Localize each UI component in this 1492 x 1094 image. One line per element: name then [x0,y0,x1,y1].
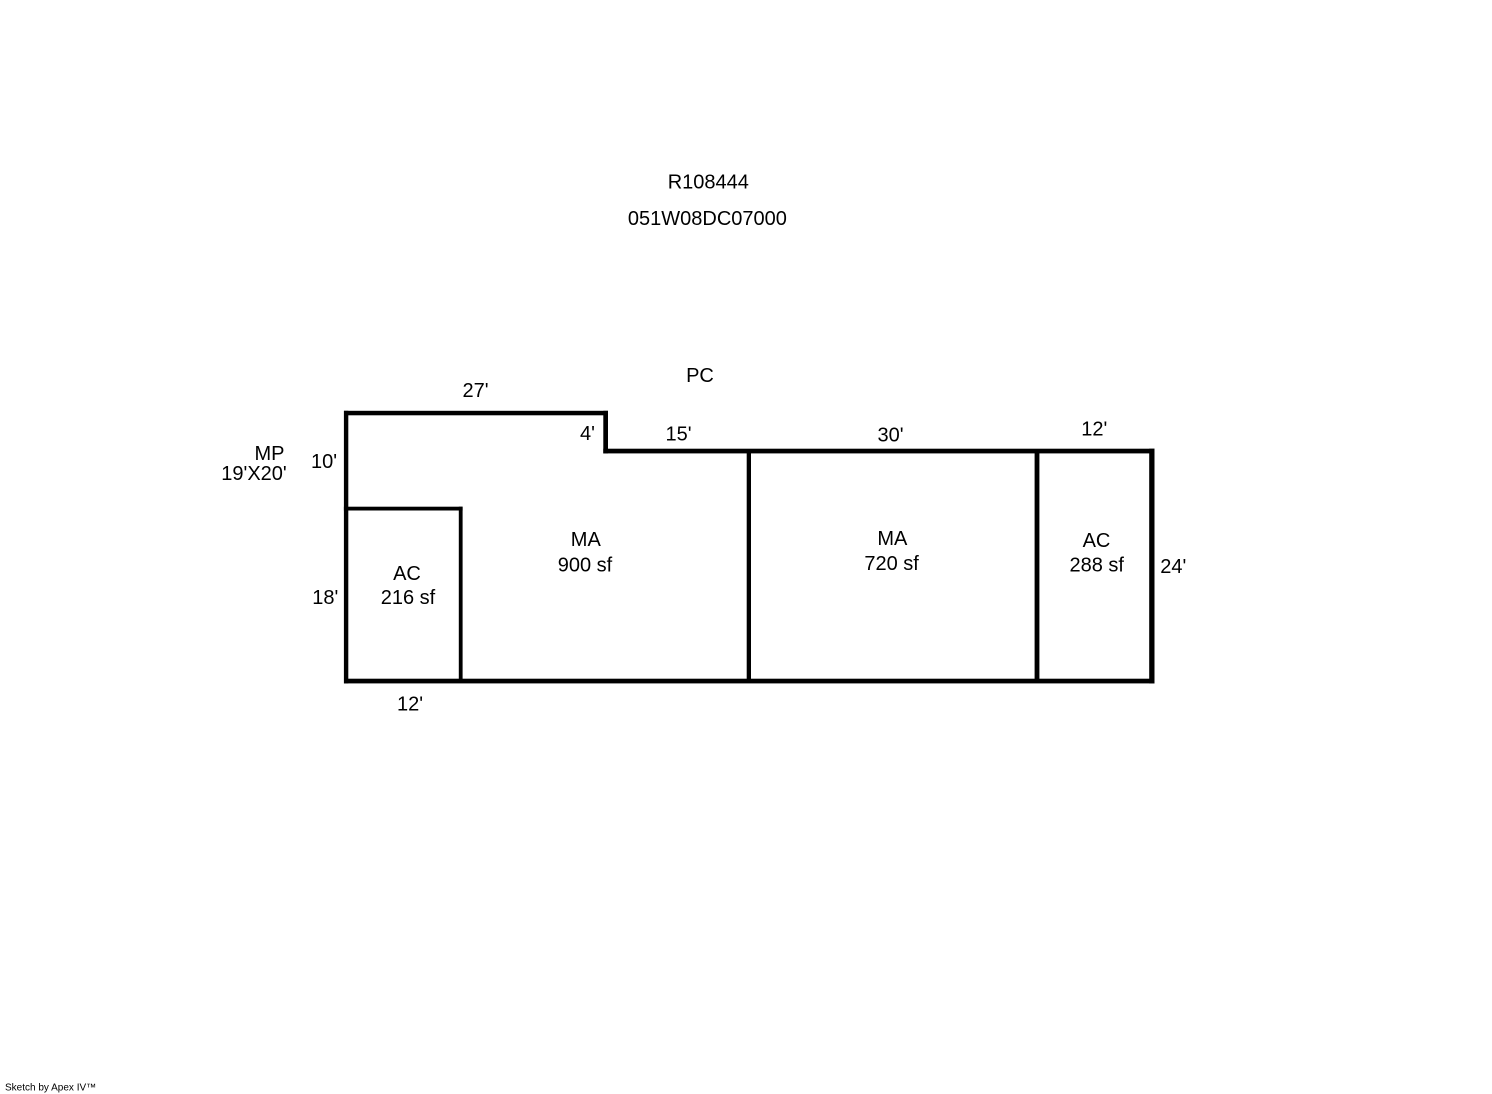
svg-text:051W08DC07000: 051W08DC07000 [628,208,787,230]
svg-text:PC: PC [686,365,714,387]
svg-text:216 sf: 216 sf [381,587,436,609]
svg-text:30': 30' [877,425,903,447]
svg-text:720 sf: 720 sf [864,553,919,575]
svg-text:15': 15' [665,424,691,446]
svg-text:MA: MA [877,528,908,550]
svg-text:10': 10' [311,451,337,473]
svg-text:900 sf: 900 sf [558,555,613,577]
svg-text:12': 12' [397,694,423,716]
svg-text:AC: AC [1083,530,1111,552]
svg-text:MA: MA [571,529,602,551]
svg-text:288 sf: 288 sf [1069,555,1124,577]
svg-text:19'X20': 19'X20' [221,463,286,485]
svg-text:24': 24' [1160,556,1186,578]
svg-text:27': 27' [462,380,488,402]
svg-text:Sketch by Apex IV™: Sketch by Apex IV™ [5,1083,96,1094]
svg-text:MP: MP [255,443,285,465]
svg-text:R108444: R108444 [668,172,749,194]
svg-text:AC: AC [393,563,421,585]
svg-text:18': 18' [312,587,338,609]
svg-text:12': 12' [1081,419,1107,441]
svg-text:4': 4' [580,423,595,445]
